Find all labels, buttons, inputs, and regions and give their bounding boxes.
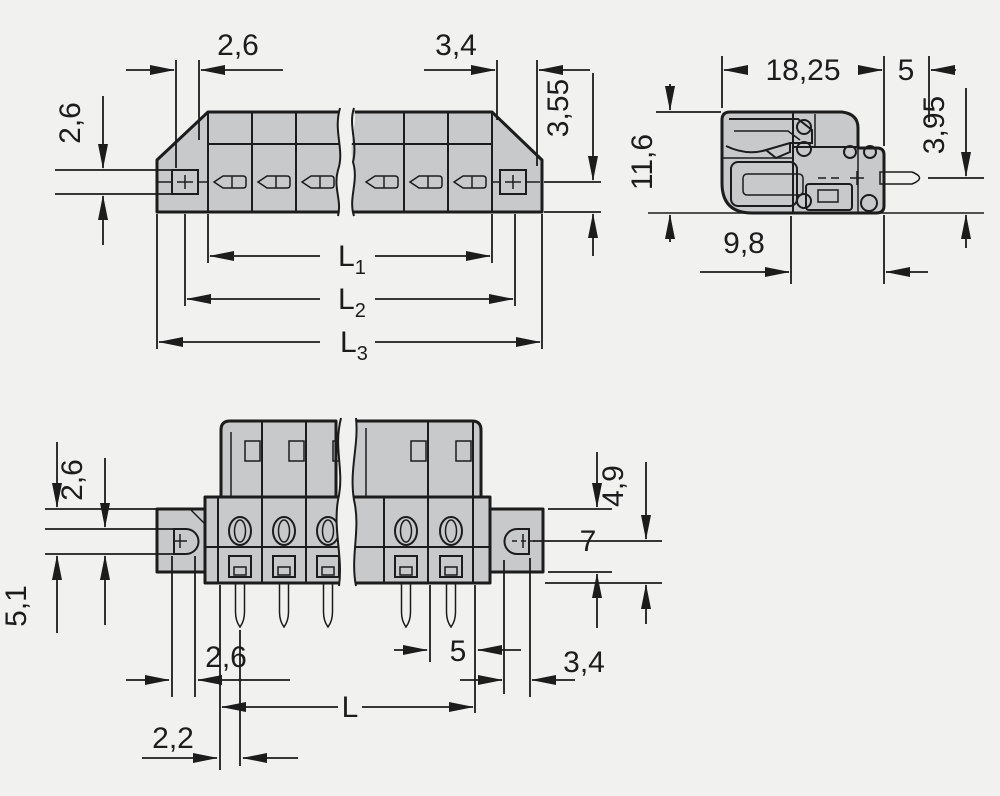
technical-drawing: 2,6 3,4 2,6 3,55	[0, 0, 1000, 796]
svg-text:5: 5	[450, 635, 467, 668]
svg-text:5,1: 5,1	[0, 585, 33, 627]
svg-text:11,6: 11,6	[626, 134, 659, 190]
drawing-page: 2,6 3,4 2,6 3,55	[0, 0, 1000, 796]
svg-text:3,95: 3,95	[918, 96, 951, 154]
svg-text:3,4: 3,4	[563, 646, 605, 679]
bottom-break-lines	[337, 418, 357, 586]
svg-text:3,55: 3,55	[542, 79, 575, 137]
svg-text:3,4: 3,4	[435, 29, 477, 62]
svg-text:2,2: 2,2	[152, 722, 194, 755]
front-break-lines	[336, 108, 355, 216]
bottom-left-flange	[157, 509, 205, 572]
svg-text:2,6: 2,6	[56, 459, 89, 501]
svg-text:5: 5	[898, 54, 915, 87]
svg-text:L: L	[342, 691, 359, 724]
svg-text:18,25: 18,25	[765, 54, 840, 87]
svg-text:9,8: 9,8	[723, 227, 765, 260]
svg-text:2,6: 2,6	[205, 641, 247, 674]
svg-text:2,6: 2,6	[217, 29, 259, 62]
svg-text:2,6: 2,6	[54, 102, 87, 144]
svg-text:4,9: 4,9	[597, 465, 630, 507]
